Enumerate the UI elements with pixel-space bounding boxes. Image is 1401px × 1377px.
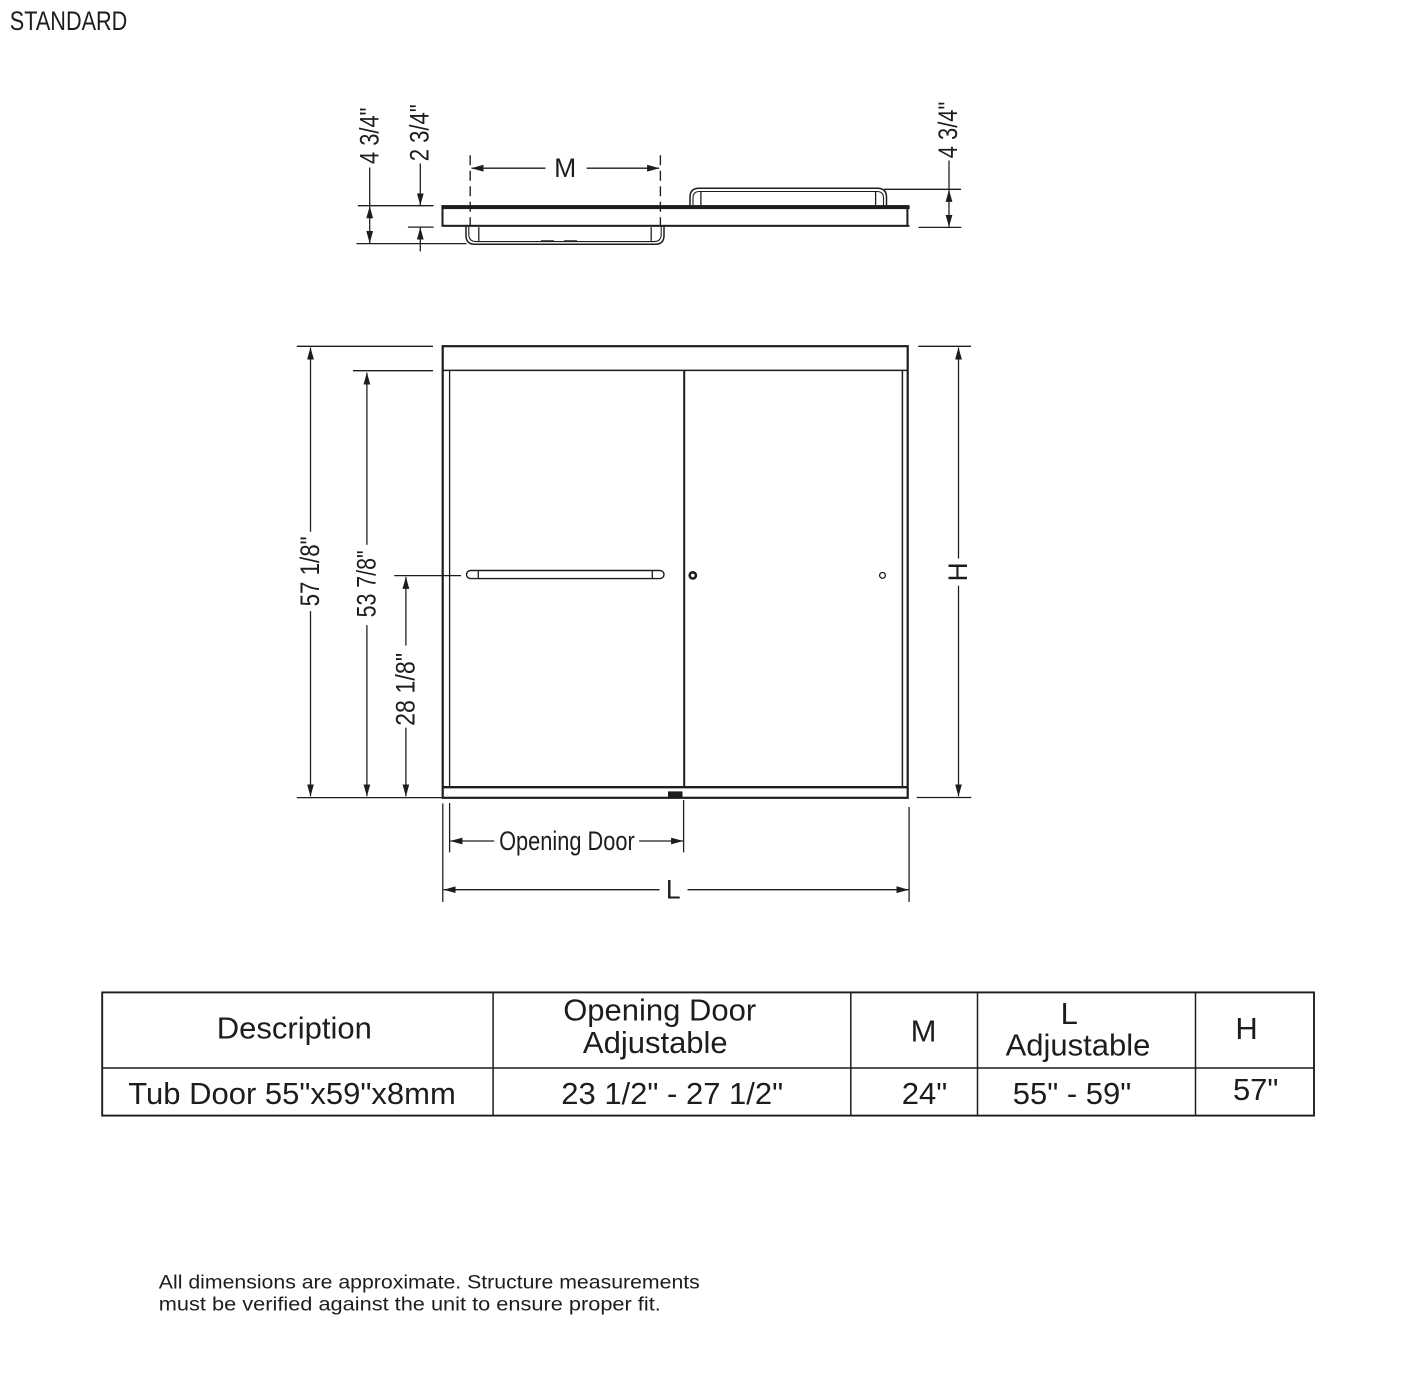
svg-text:STANDARD: STANDARD: [10, 5, 128, 36]
svg-text:57": 57": [1233, 1072, 1279, 1107]
svg-text:23 1/2" - 27 1/2": 23 1/2" - 27 1/2": [561, 1076, 783, 1111]
svg-text:2 3/4": 2 3/4": [405, 104, 435, 161]
svg-text:53 7/8": 53 7/8": [351, 550, 381, 617]
svg-text:Opening Door: Opening Door: [563, 992, 756, 1027]
svg-text:4 3/4": 4 3/4": [933, 102, 963, 159]
svg-text:24": 24": [902, 1076, 948, 1111]
svg-text:28 1/8": 28 1/8": [391, 653, 421, 726]
svg-text:M: M: [554, 153, 576, 183]
svg-text:4 3/4": 4 3/4": [354, 108, 384, 165]
svg-text:Adjustable: Adjustable: [583, 1025, 728, 1060]
svg-text:Tub Door 55"x59"x8mm: Tub Door 55"x59"x8mm: [128, 1076, 456, 1111]
svg-text:Opening Door: Opening Door: [499, 826, 635, 856]
svg-text:Adjustable: Adjustable: [1006, 1027, 1151, 1062]
svg-text:M: M: [911, 1014, 937, 1049]
svg-text:H: H: [1235, 1011, 1257, 1046]
svg-text:H: H: [943, 562, 973, 581]
svg-text:L: L: [666, 875, 681, 905]
svg-text:57 1/8": 57 1/8": [295, 536, 325, 606]
svg-text:All dimensions are approximate: All dimensions are approximate. Structur…: [159, 1272, 700, 1294]
svg-text:55" - 59": 55" - 59": [1013, 1076, 1132, 1111]
svg-text:must be verified against the u: must be verified against the unit to ens…: [159, 1293, 661, 1315]
svg-text:L: L: [1061, 996, 1078, 1031]
svg-text:Description: Description: [217, 1011, 372, 1046]
